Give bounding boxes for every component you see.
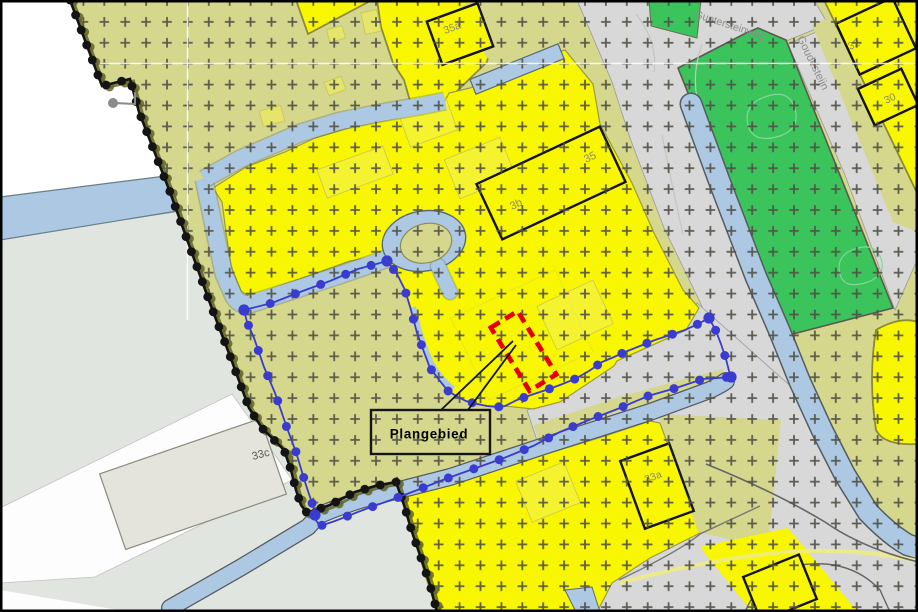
svg-text:Plangebied: Plangebied (390, 427, 468, 442)
